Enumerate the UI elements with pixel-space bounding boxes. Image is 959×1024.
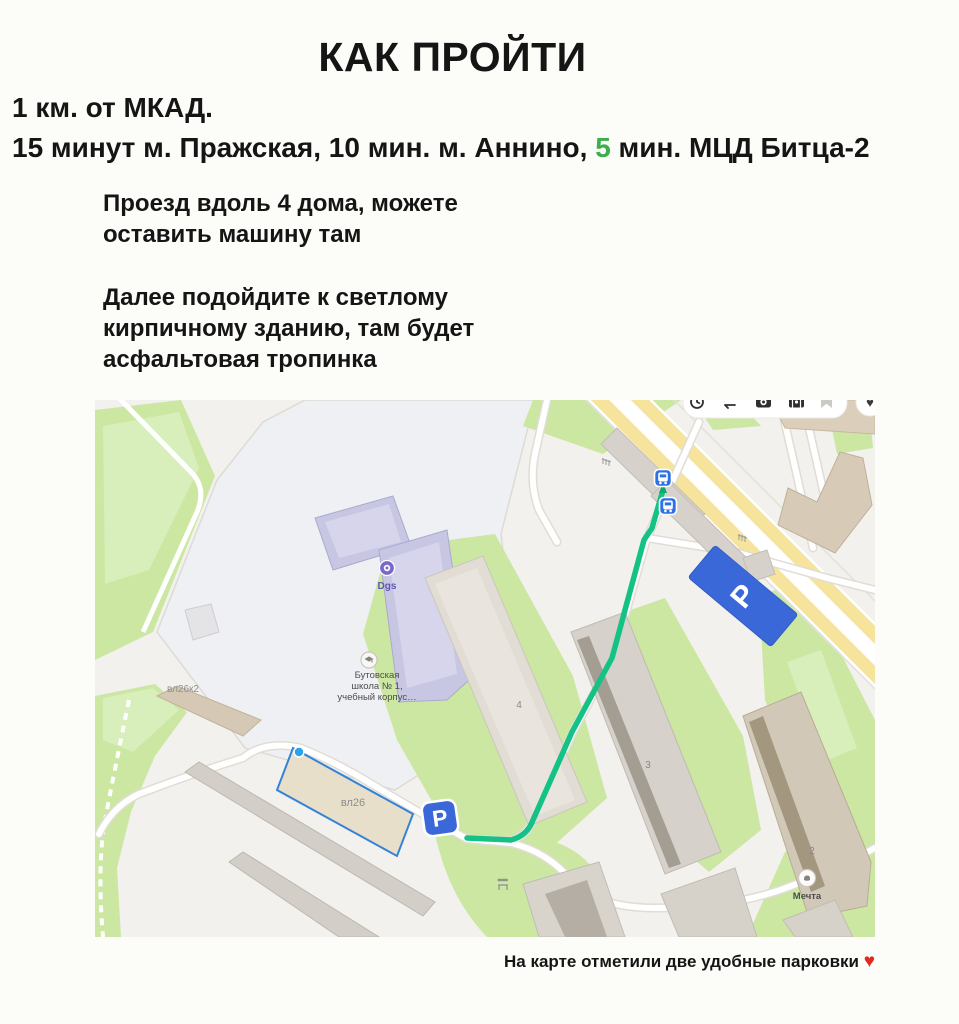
map-canvas[interactable]: вл26к2 вл26 4 3 2 Бутовская школа № 1, у… bbox=[95, 400, 875, 937]
heart-icon: ♥ bbox=[864, 951, 875, 972]
camera-icon[interactable] bbox=[756, 400, 771, 408]
dgs-label: Dgs bbox=[378, 581, 397, 592]
step-1-line-1: Проезд вдоль 4 дома, можете bbox=[103, 188, 474, 219]
panorama-icon[interactable] bbox=[789, 400, 804, 408]
map[interactable]: вл26к2 вл26 4 3 2 Бутовская школа № 1, у… bbox=[95, 400, 875, 937]
label-vl26: вл26 bbox=[341, 797, 365, 809]
label-vl26k2: вл26к2 bbox=[167, 684, 199, 695]
step-2: Далее подойдите к светлому кирпичному зд… bbox=[103, 282, 474, 375]
bus-stop-icon[interactable] bbox=[660, 498, 677, 515]
page: КАК ПРОЙТИ 1 км. от МКАД. 15 минут м. Пр… bbox=[0, 0, 959, 1024]
caption-text: На карте отметили две удобные парковки bbox=[504, 952, 859, 971]
page-title: КАК ПРОЙТИ bbox=[0, 34, 932, 81]
origin-dot bbox=[294, 747, 304, 757]
step-2-line-1: Далее подойдите к светлому bbox=[103, 282, 474, 313]
step-2-line-3: асфальтовая тропинка bbox=[103, 344, 474, 375]
step-1: Проезд вдоль 4 дома, можете оставить маш… bbox=[103, 188, 474, 250]
label-building-3: 3 bbox=[645, 760, 651, 771]
label-building-2: 2 bbox=[809, 846, 815, 857]
step-2-line-2: кирпичному зданию, там будет bbox=[103, 313, 474, 344]
parking-marker-small[interactable]: P bbox=[421, 799, 459, 837]
favorites-heart-icon: ♥ bbox=[866, 400, 874, 410]
mechta-poi-icon[interactable] bbox=[799, 870, 816, 887]
school-label-line-1: Бутовская bbox=[355, 670, 400, 681]
transit-line-suffix: мин. МЦД Битца-2 bbox=[611, 132, 870, 163]
bus-stop-icon[interactable] bbox=[655, 470, 672, 487]
step-1-line-2: оставить машину там bbox=[103, 219, 474, 250]
school-icon[interactable] bbox=[361, 652, 377, 668]
label-building-4: 4 bbox=[516, 700, 522, 711]
transit-line-prefix: 15 минут м. Пражская, 10 мин. м. Аннино, bbox=[12, 132, 595, 163]
transit-line: 15 минут м. Пражская, 10 мин. м. Аннино,… bbox=[12, 132, 870, 164]
dgs-poi-icon[interactable] bbox=[380, 561, 395, 576]
school-label-line-3: учебный корпус… bbox=[337, 692, 416, 703]
directions-steps: Проезд вдоль 4 дома, можете оставить маш… bbox=[103, 188, 474, 407]
school-label-line-2: школа № 1, bbox=[351, 681, 402, 692]
transit-line-highlight: 5 bbox=[595, 132, 611, 163]
map-caption: На карте отметили две удобные парковки ♥ bbox=[504, 951, 875, 973]
mechta-label: Мечта bbox=[793, 891, 822, 902]
distance-line: 1 км. от МКАД. bbox=[12, 92, 213, 124]
